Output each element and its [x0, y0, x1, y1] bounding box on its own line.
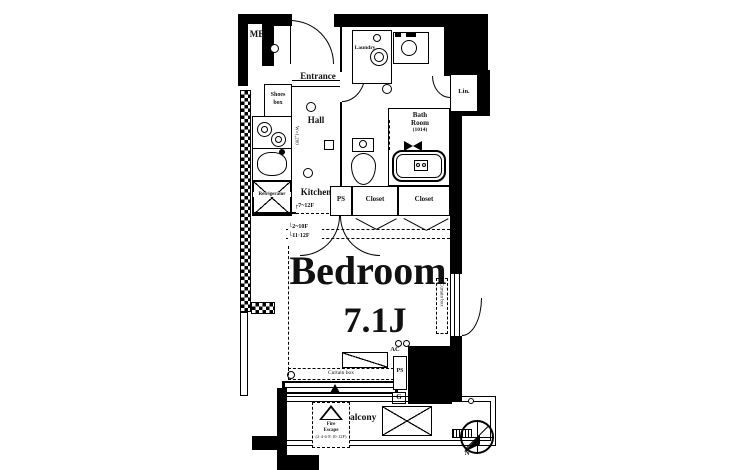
hatch-label: Escape — [312, 428, 350, 433]
bedroom-size-label: 7.1J — [310, 302, 440, 340]
washing-machine-icon — [374, 52, 384, 62]
wall-segment — [262, 16, 274, 66]
linen-label: Lin. — [450, 89, 478, 96]
ceiling-light-icon — [303, 168, 313, 178]
entrance-step-line — [292, 80, 340, 81]
kitchen-width-label: W=1,200 — [293, 126, 298, 145]
balcony-window-cap — [282, 381, 285, 394]
floor-note: ┌7~12F — [294, 203, 334, 209]
curtain-box-right-label: Curtain box — [438, 283, 443, 307]
meter-icon — [270, 44, 279, 53]
outlet-icon — [403, 340, 410, 347]
bath-control-knob — [422, 163, 426, 167]
outlet-icon — [395, 340, 402, 347]
faucet-icon — [279, 149, 285, 155]
counter-divider — [252, 148, 292, 149]
drain-icon — [468, 398, 474, 404]
pipe-space-lower-label: PS — [393, 368, 407, 374]
wall-segment — [444, 14, 488, 76]
refrigerator-label: Refrigerator — [253, 192, 291, 197]
wall-segment — [334, 14, 446, 27]
bedroom-label: Bedroom — [282, 250, 454, 292]
bath-control-knob — [416, 163, 420, 167]
closet-left-label: Closet — [352, 196, 398, 203]
hatch-label: (2·4·6·8·10·12F) — [312, 435, 350, 440]
wall-segment — [287, 455, 319, 470]
washing-machine-icon — [373, 34, 381, 42]
remote-panel — [324, 140, 334, 150]
hatch-label: Fire — [312, 422, 350, 427]
wall-line — [252, 212, 296, 214]
stove-burner-icon — [275, 136, 282, 143]
north-label: N — [461, 450, 473, 457]
ac-unit-box — [342, 352, 388, 368]
outdoor-unit-box — [382, 406, 432, 436]
balcony-window — [282, 392, 398, 394]
toilet-tank-basin — [359, 140, 367, 148]
toilet-bowl-icon — [351, 153, 376, 185]
side-window — [450, 274, 460, 336]
wall-segment — [252, 436, 280, 450]
tiled-wall-strip — [240, 90, 251, 312]
window-center-marker — [330, 384, 340, 393]
closet-right-label: Closet — [398, 196, 450, 203]
curtain-box-bottom-label: Curtain box — [288, 371, 394, 377]
ceiling-light-icon — [382, 84, 392, 94]
bedroom-outer-wall — [240, 312, 248, 396]
balcony-window — [282, 387, 398, 388]
balcony-window — [282, 381, 398, 383]
mb-label: MB — [246, 30, 268, 39]
bath-door-line — [389, 120, 390, 150]
shoe-box-label: box — [264, 100, 292, 106]
tiled-wall-strip — [251, 302, 275, 314]
wall-line — [340, 102, 342, 188]
linen-door-arc — [432, 76, 450, 98]
ac-label: AC — [388, 347, 402, 354]
kitchen-sink-icon — [257, 152, 287, 176]
wash-basin-icon — [401, 40, 417, 56]
floor-plan: MB Entrance Shoes box Refrigerator W=1,2… — [0, 0, 730, 470]
exterior-door-arc — [462, 298, 482, 336]
entrance-door-arc — [290, 20, 334, 64]
vanity-fixture — [406, 33, 416, 37]
side-window-line — [454, 274, 455, 336]
vanity-fixture — [395, 33, 401, 37]
entrance-step-line — [292, 86, 340, 87]
refrigerator-box — [253, 181, 291, 215]
bath-room-label: (1014) — [398, 128, 442, 134]
shoe-box-label: Shoes — [264, 92, 292, 98]
ceiling-light-icon — [306, 102, 316, 112]
pipe-space-label: PS — [330, 196, 352, 203]
wall-segment — [238, 14, 248, 86]
hall-label: Hall — [296, 116, 336, 125]
wall-line — [340, 27, 342, 72]
stove-burner-icon — [261, 126, 268, 133]
